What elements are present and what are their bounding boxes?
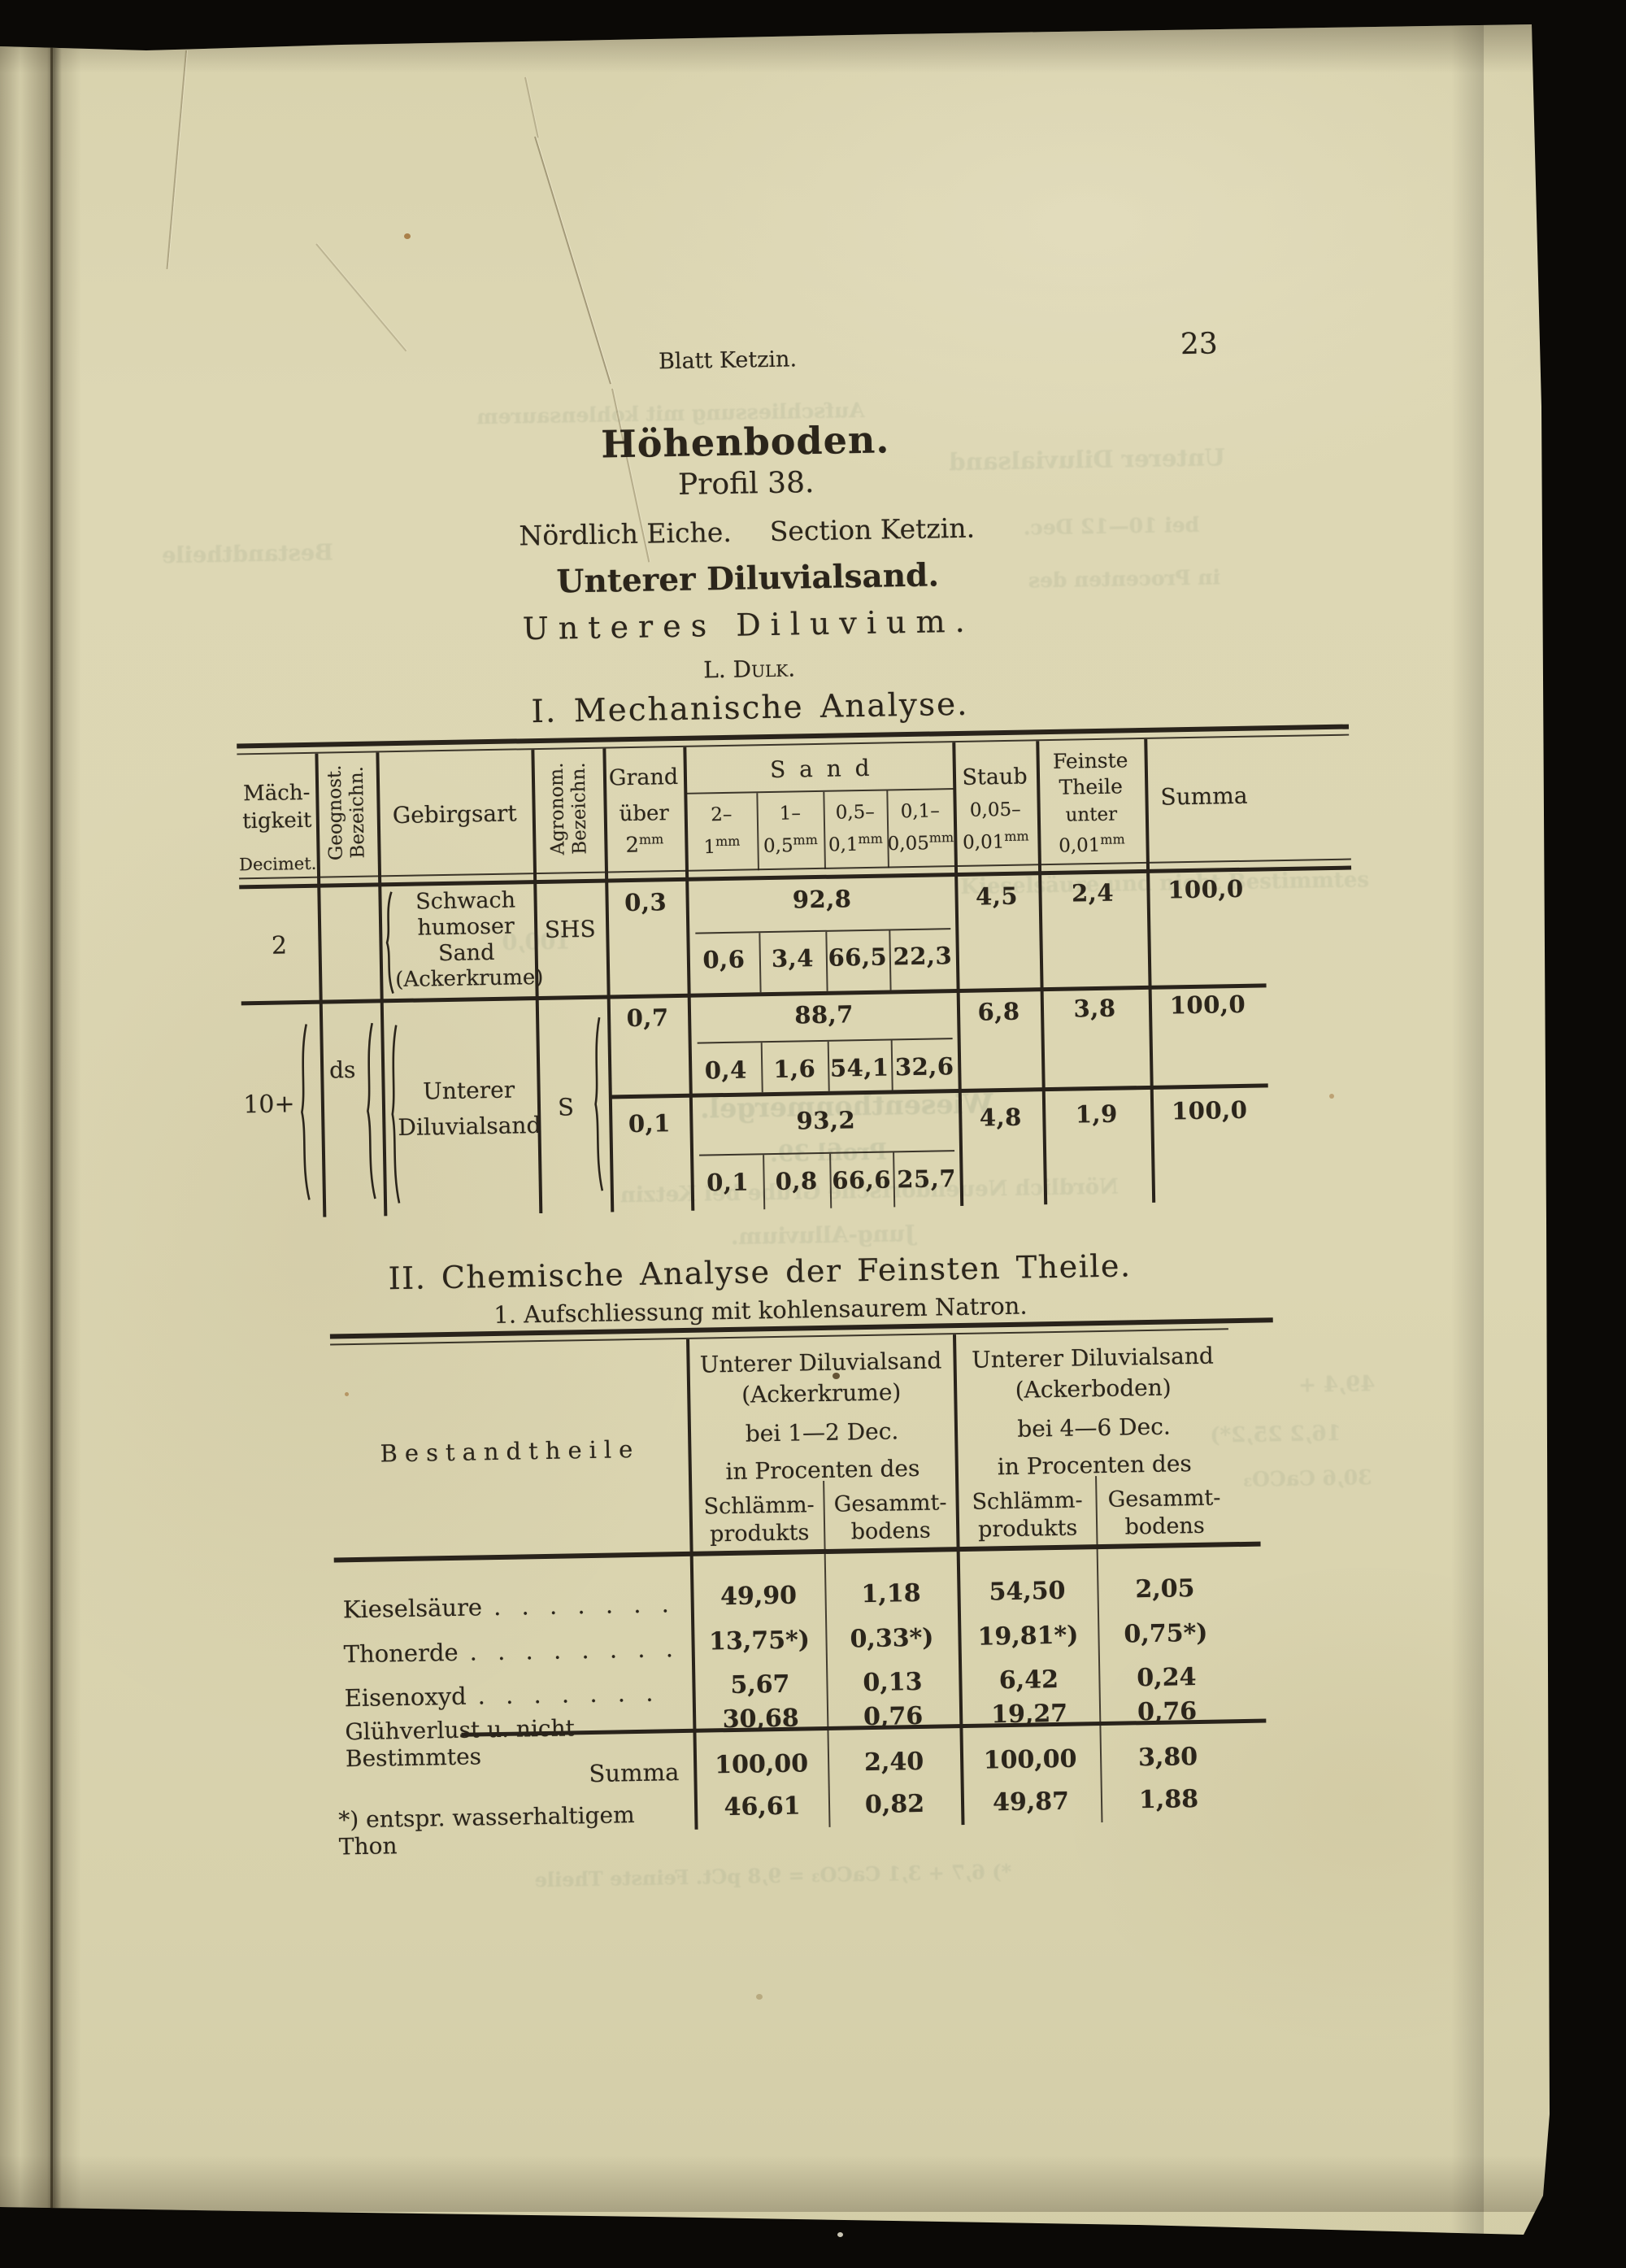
cell-staub-2a: 6,8 <box>957 997 1041 1026</box>
bleedthrough-text: *) 6,7 + 3,1 CaCO₃ = 9,8 pCt. Feinste Th… <box>534 1860 1011 1891</box>
cell-sand-part: 66,6 <box>829 1165 893 1194</box>
col-header-geognost-l1: Geognost. <box>324 764 348 860</box>
col-header-feinste-4: 0,01mm <box>1037 831 1146 857</box>
sand-sub-num: 0,5 <box>763 835 793 857</box>
row-label: Eisenoxyd. . . . . . . <box>344 1678 694 1712</box>
group1-percent: in Procenten des <box>690 1454 956 1486</box>
table1-rule-sand-underline <box>685 788 954 794</box>
sand-sub-header-3: 0,5– <box>824 801 887 823</box>
grand-size-unit: mm <box>639 831 664 847</box>
row-value: 54,50 <box>957 1576 1098 1607</box>
row-value: 19,27 <box>959 1699 1100 1730</box>
location-part-a: Nördlich Eiche. <box>519 516 732 552</box>
cell-sand-part: 0,8 <box>763 1167 830 1195</box>
summa-label: Summa <box>337 1758 680 1791</box>
cell-maechtigkeit-2: 10+ <box>240 1090 299 1119</box>
col-header-gebirgsart: Gebirgsart <box>376 799 533 829</box>
cell-feinste-2b: 1,9 <box>1042 1099 1151 1129</box>
row-value: 0,24 <box>1098 1662 1235 1693</box>
row-value: 6,42 <box>959 1665 1099 1696</box>
material-title: Unterer Diluvialsand. <box>235 551 1260 606</box>
sand-sub-header-1: 2– <box>686 803 757 826</box>
sand-sub-header-2: 1– <box>757 803 824 825</box>
col-header-agronom-l1: Agronom. <box>546 762 570 855</box>
sand-sub-unit: mm <box>858 831 883 847</box>
row-value: 19,81*) <box>958 1621 1098 1652</box>
dust-speck <box>837 2232 843 2237</box>
cell-summa-2a: 100,0 <box>1149 990 1267 1020</box>
col-header-maechtigkeit-2: tigkeit <box>238 810 316 833</box>
col-header-feinste-2: Theile <box>1037 774 1145 799</box>
group2-name: Unterer Diluvialsand <box>956 1342 1229 1373</box>
row-label-text: Eisenoxyd <box>344 1682 467 1713</box>
sand-sub-header-4b: 0,05mm <box>887 829 954 855</box>
location-part-b: Section Ketzin. <box>769 512 975 547</box>
group2-sub1-l2: produkts <box>959 1515 1097 1543</box>
cell-sand-part: 3,4 <box>759 944 827 973</box>
cell-sand-part: 54,1 <box>828 1053 892 1082</box>
cell-sand-total-2b: 93,2 <box>691 1104 961 1137</box>
cell-geognost-2: ds <box>322 1056 363 1084</box>
row-label: Thonerde. . . . . . . . <box>343 1635 693 1668</box>
sand-sub-unit: mm <box>793 832 818 848</box>
col-header-geognost: Geognost. Bezeichn. <box>321 747 372 878</box>
summa-value: 2,40 <box>828 1747 961 1778</box>
feinste-unit: mm <box>1100 831 1125 847</box>
col-header-feinste: Feinste <box>1036 748 1144 773</box>
cell-summa-1: 100,0 <box>1146 874 1265 904</box>
cell-feinste-2a: 3,8 <box>1041 994 1150 1023</box>
dot-leader: . . . . . . . <box>477 1679 653 1710</box>
brace-agronom-2 <box>589 1014 606 1195</box>
row-value: 5,67 <box>693 1669 827 1700</box>
group2-sub2-l1: Gesammt- <box>1097 1485 1232 1513</box>
group1-name-2: (Ackerkrume) <box>689 1378 954 1409</box>
footnote-value: 1,88 <box>1101 1784 1237 1815</box>
group2-percent: in Procenten des <box>959 1449 1232 1481</box>
row-value: 0,76 <box>827 1701 960 1732</box>
row-label-text: Thonerde <box>343 1639 458 1668</box>
bleedthrough-text: Jung-Alluvium. <box>731 1221 915 1250</box>
sand-sub-unit: mm <box>715 834 741 850</box>
cell-sand-total-1: 92,8 <box>687 883 957 916</box>
cell-maechtigkeit-1: 2 <box>240 931 319 961</box>
brace-maechtigkeit-2 <box>295 1021 313 1204</box>
col-header-staub: Staub <box>953 764 1037 790</box>
cell-sand-part: 32,6 <box>891 1052 959 1081</box>
group1-sub1-l1: Schlämm- <box>694 1492 824 1520</box>
scanned-book-page: { "theme": {"paper": "#dcd6b2", "ink": "… <box>0 0 1626 2255</box>
brace-gebirgsart-1 <box>381 890 396 995</box>
col-header-grand-l2: über <box>604 803 685 825</box>
group1-depth: bei 1—2 Dec. <box>689 1417 955 1448</box>
cell-sand-part: 25,7 <box>893 1164 960 1193</box>
sand-sub-unit: mm <box>929 829 954 846</box>
group1-sub2-l2: bodens <box>825 1517 957 1545</box>
summa-value: 100,00 <box>960 1744 1101 1775</box>
staub-unit: mm <box>1004 828 1029 844</box>
footnote-label: *) entspr. wasserhaltigem Thon <box>338 1800 689 1860</box>
staub-num: 0,01 <box>963 832 1005 854</box>
summa-value: 3,80 <box>1100 1742 1237 1773</box>
running-header: Blatt Ketzin. <box>541 345 915 377</box>
group2-sub1-l1: Schlämm- <box>959 1487 1096 1515</box>
group2-depth: bei 4—6 Dec. <box>958 1412 1231 1443</box>
row-value: 1,18 <box>824 1578 958 1609</box>
table1-rule-sand-split-2 <box>698 1038 953 1043</box>
section1-heading: I. Mechanische Analyse. <box>237 681 1263 735</box>
row-value: 30,68 <box>694 1704 828 1735</box>
dot-leader: . . . . . . . <box>493 1590 669 1621</box>
bleedthrough-text: 30,6 CaCO₃ <box>1243 1465 1372 1491</box>
col-header-agronom: Agronom. Bezeichn. <box>543 743 594 874</box>
stratum-title: Unteres Diluvium. <box>236 598 1261 651</box>
cell-sand-part: 0,4 <box>690 1056 762 1085</box>
row-label-text: Kieselsäure <box>342 1593 482 1623</box>
cell-sand-part: 22,3 <box>889 942 957 970</box>
cell-gebirgsart-1-l1: Schwach <box>397 887 534 915</box>
sand-sub-num: 0,05 <box>887 833 929 855</box>
col-header-staub-from: 0,05– <box>954 799 1037 821</box>
sand-sub-header-1b: 1mm <box>686 833 758 858</box>
sand-sub-num: 0,1 <box>828 834 859 856</box>
cell-sand-total-2a: 88,7 <box>689 999 959 1031</box>
row-value: 0,33*) <box>825 1623 959 1654</box>
footnote-value: 0,82 <box>828 1789 962 1820</box>
row-value: 0,76 <box>1099 1696 1236 1727</box>
cell-agronom-2: S <box>537 1093 595 1121</box>
cell-feinste-1: 2,4 <box>1038 878 1147 908</box>
group2-name-2: (Ackerboden) <box>957 1373 1230 1404</box>
col-header-grand: Grand <box>603 766 684 790</box>
cell-grand-2a: 0,7 <box>607 1003 689 1033</box>
feinste-num: 0,01 <box>1059 835 1101 857</box>
col-header-grand-size: 2mm <box>604 833 685 856</box>
group1-sub1-l2: produkts <box>695 1520 824 1548</box>
row-value: 49,90 <box>692 1581 825 1612</box>
row-value: 13,75*) <box>693 1626 826 1656</box>
cell-sand-part: 66,5 <box>826 942 890 971</box>
group1-name: Unterer Diluvialsand <box>688 1347 954 1378</box>
col-header-geognost-l2: Bezeichn. <box>346 766 370 859</box>
sand-sub-header-3b: 0,1mm <box>824 830 888 855</box>
sand-sub-num: 1 <box>703 837 715 858</box>
summa-value: 100,00 <box>695 1749 828 1780</box>
cell-gebirgsart-1-l4: (Ackerkrume) <box>395 965 538 992</box>
row-value: 2,05 <box>1097 1574 1233 1604</box>
cell-summa-2b: 100,0 <box>1150 1095 1269 1125</box>
cell-staub-2b: 4,8 <box>959 1103 1043 1132</box>
cell-sand-part: 0,6 <box>689 945 760 974</box>
col-header-sand-group: S a n d <box>685 753 955 785</box>
cell-staub-1: 4,5 <box>954 882 1039 911</box>
col-header-maechtigkeit: Mäch- <box>237 782 315 805</box>
col-header-summa: Summa <box>1145 781 1263 811</box>
cell-sand-part: 1,6 <box>761 1055 828 1083</box>
cell-sand-part: 0,1 <box>692 1168 763 1197</box>
cell-grand-2b: 0,1 <box>609 1109 690 1138</box>
table1-rule-sand-split-1 <box>695 928 950 934</box>
row-value: 0,75*) <box>1098 1618 1234 1649</box>
footnote-value: 46,61 <box>696 1791 829 1822</box>
group1-sub2-l1: Gesammt- <box>824 1490 956 1517</box>
col-header-feinste-3: unter <box>1037 803 1146 826</box>
footnote-value: 49,87 <box>961 1787 1102 1817</box>
cell-agronom-1: SHS <box>534 916 606 944</box>
page-number: 23 <box>1166 327 1232 361</box>
row-label: Kieselsäure. . . . . . . <box>342 1590 693 1623</box>
cell-gebirgsart-1-l3: Sand <box>398 939 535 967</box>
col-header-agronom-l2: Bezeichn. <box>568 762 592 855</box>
cell-grand-1: 0,3 <box>605 888 686 917</box>
bleedthrough-text: 49,4 + <box>1298 1372 1376 1398</box>
col-header-bestandtheile: Bestandtheile <box>332 1434 689 1469</box>
brace-geognost-2 <box>361 1020 379 1203</box>
col-header-maechtigkeit-unit: Decimet. <box>239 854 317 875</box>
grand-size-num: 2 <box>625 833 639 857</box>
cell-gebirgsart-1-l2: humoser <box>398 913 535 941</box>
sand-sub-header-4: 0,1– <box>887 800 954 822</box>
col-header-staub-to: 0,01mm <box>954 828 1038 853</box>
group2-sub2-l2: bodens <box>1098 1513 1233 1540</box>
cell-gebirgsart-2-l1: Unterer <box>403 1076 534 1105</box>
dot-leader: . . . . . . . . <box>469 1635 673 1665</box>
cell-gebirgsart-2-l2: Diluvialsand <box>398 1112 541 1141</box>
sand-sub-header-2b: 0,5mm <box>757 832 824 857</box>
printed-content: Aufschliessung mit kohlensaurem Unterer … <box>0 0 1626 2268</box>
paper-page: Aufschliessung mit kohlensaurem Unterer … <box>0 0 1553 2255</box>
row-value: 0,13 <box>826 1667 959 1698</box>
location-line: Nördlich Eiche. Section Ketzin. <box>234 507 1259 556</box>
